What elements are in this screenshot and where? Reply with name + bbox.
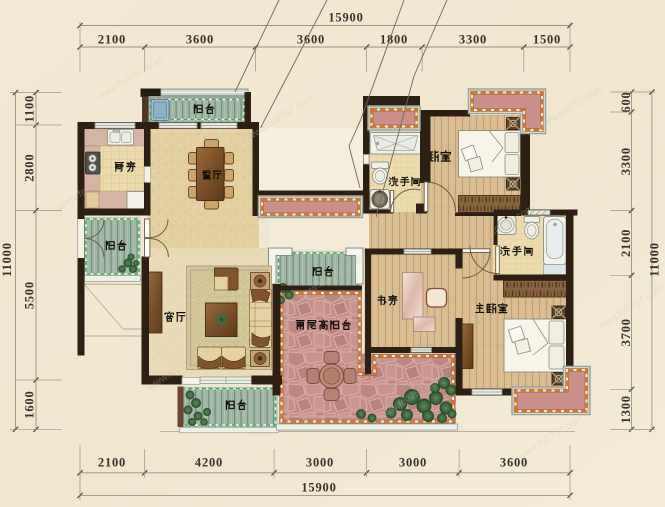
svg-text:1600: 1600: [23, 390, 37, 418]
svg-text:15900: 15900: [301, 481, 336, 495]
svg-text:1500: 1500: [533, 33, 561, 47]
svg-text:3300: 3300: [459, 33, 487, 47]
svg-text:3300: 3300: [619, 147, 633, 175]
svg-text:5500: 5500: [23, 281, 37, 309]
svg-text:3700: 3700: [619, 318, 633, 346]
svg-text:3600: 3600: [297, 33, 325, 47]
svg-text:15900: 15900: [328, 11, 363, 25]
svg-text:2100: 2100: [98, 456, 126, 470]
svg-text:4200: 4200: [195, 456, 223, 470]
svg-text:1800: 1800: [380, 33, 408, 47]
svg-text:1100: 1100: [23, 95, 37, 123]
svg-text:1300: 1300: [619, 395, 633, 423]
svg-text:2100: 2100: [98, 33, 126, 47]
svg-text:3000: 3000: [306, 456, 334, 470]
svg-text:600: 600: [619, 91, 633, 112]
svg-text:2100: 2100: [619, 229, 633, 257]
svg-text:3000: 3000: [399, 456, 427, 470]
svg-text:11000: 11000: [0, 242, 14, 277]
svg-text:2800: 2800: [23, 154, 37, 182]
svg-text:11000: 11000: [648, 242, 662, 277]
svg-text:3600: 3600: [186, 33, 214, 47]
